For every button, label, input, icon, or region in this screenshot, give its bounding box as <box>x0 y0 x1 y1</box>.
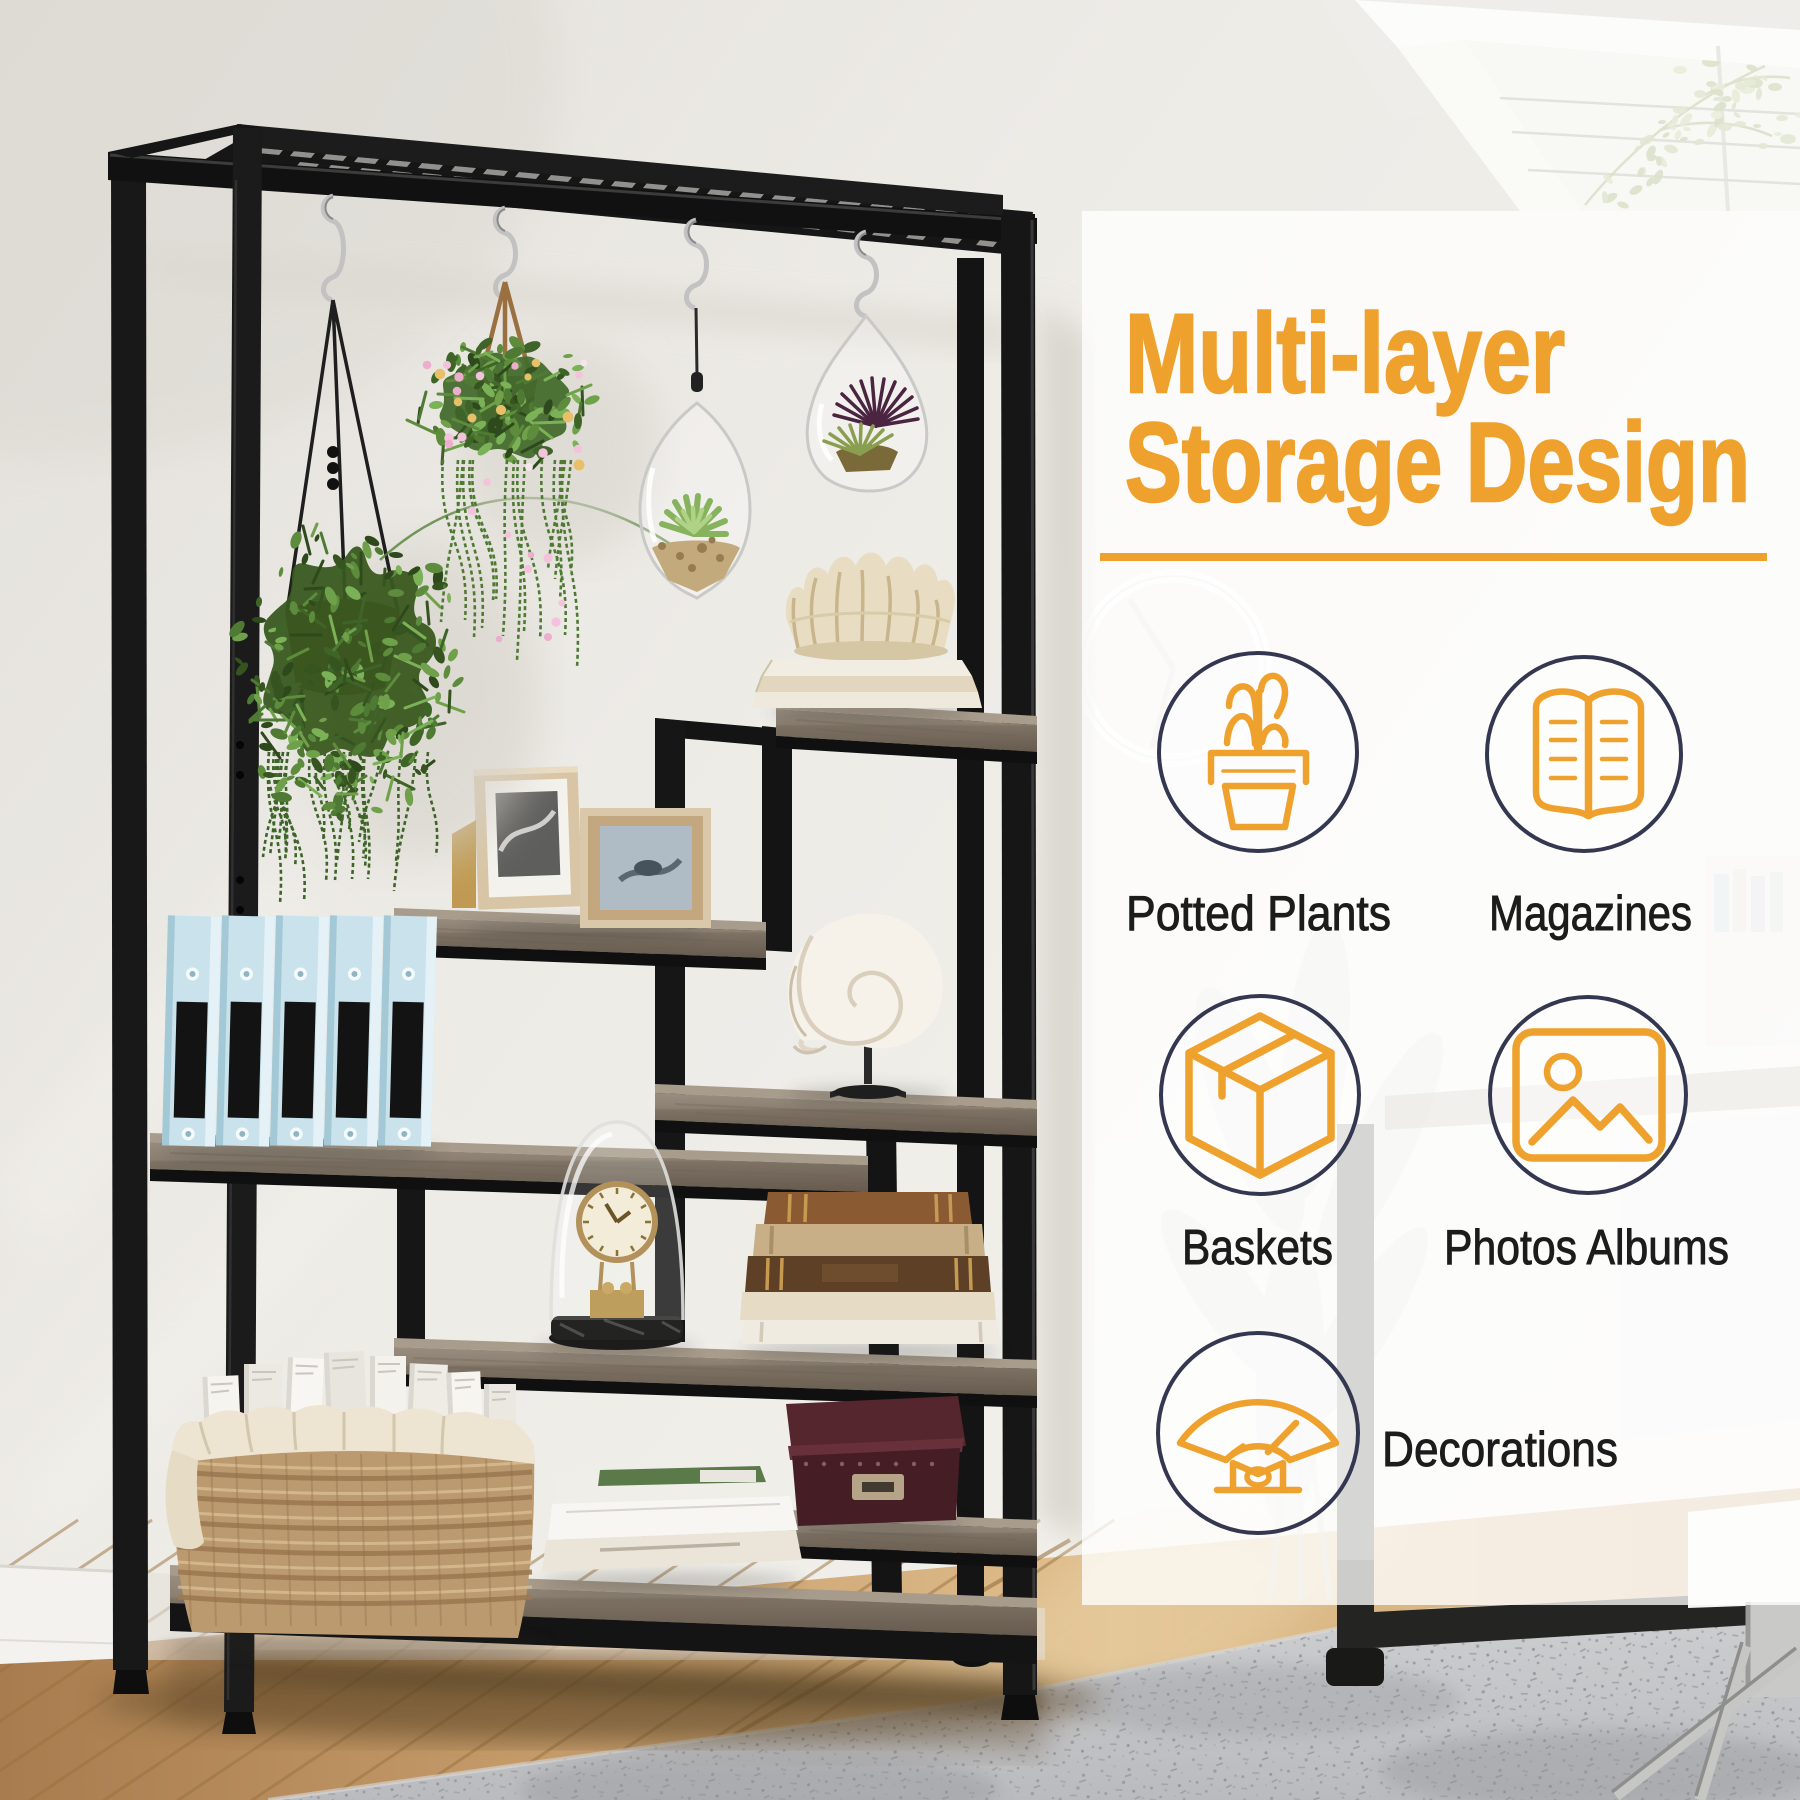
svg-text:Decorations: Decorations <box>1382 1423 1618 1477</box>
svg-text:Photos Albums: Photos Albums <box>1444 1221 1729 1275</box>
svg-text:Potted Plants: Potted Plants <box>1126 887 1391 941</box>
svg-text:Multi-layer: Multi-layer <box>1125 291 1565 416</box>
svg-text:Baskets: Baskets <box>1182 1221 1333 1275</box>
svg-text:Storage Design: Storage Design <box>1125 400 1750 525</box>
svg-text:Magazines: Magazines <box>1489 887 1692 941</box>
